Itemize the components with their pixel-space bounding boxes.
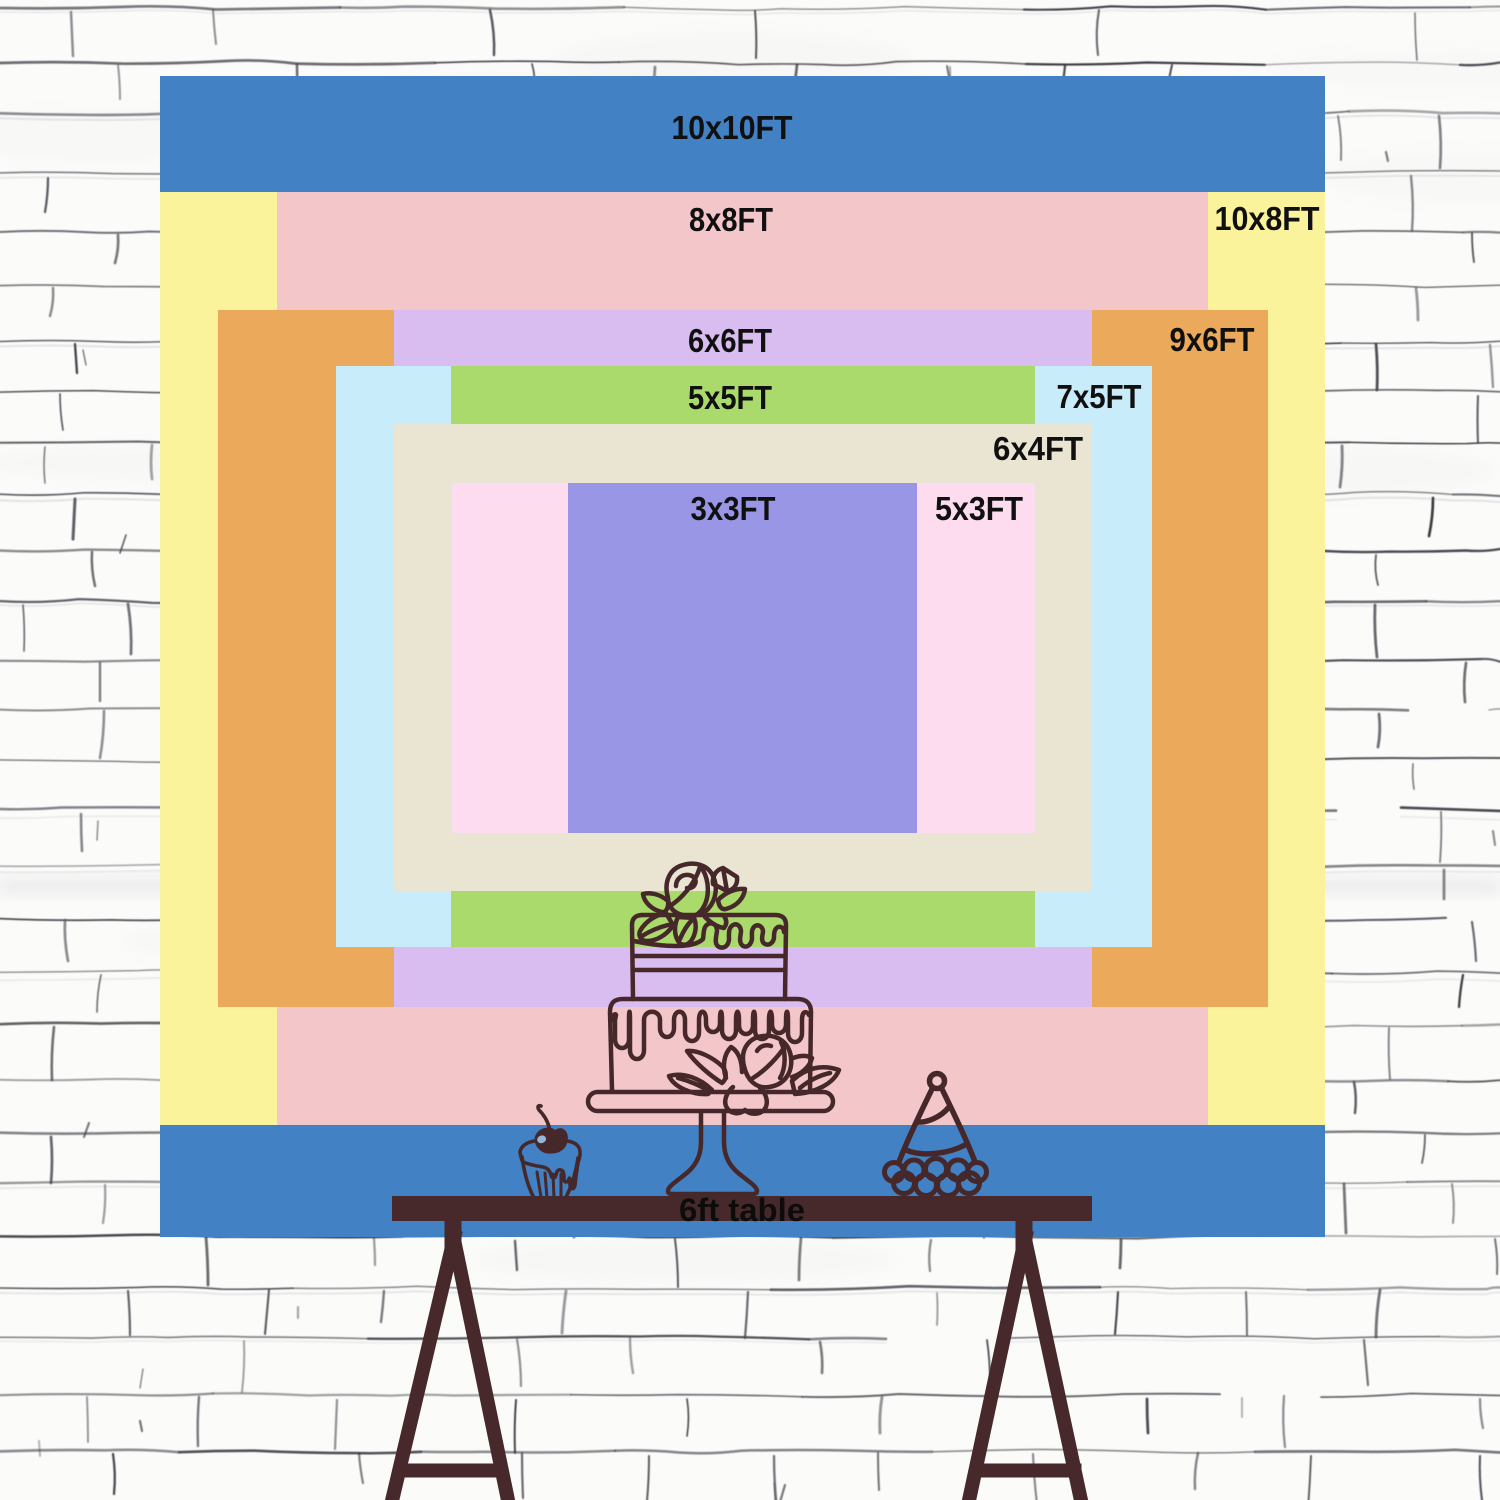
svg-text:3x3FT: 3x3FT — [691, 490, 776, 527]
svg-text:10x8FT: 10x8FT — [1215, 200, 1320, 237]
svg-text:6ft table: 6ft table — [679, 1192, 805, 1228]
svg-text:5x5FT: 5x5FT — [688, 379, 772, 416]
svg-text:8x8FT: 8x8FT — [689, 201, 773, 238]
svg-text:10x10FT: 10x10FT — [672, 109, 793, 146]
svg-text:6x6FT: 6x6FT — [688, 322, 772, 359]
svg-text:7x5FT: 7x5FT — [1057, 378, 1142, 415]
svg-text:9x6FT: 9x6FT — [1170, 321, 1255, 358]
svg-text:5x3FT: 5x3FT — [935, 490, 1023, 527]
svg-text:6x4FT: 6x4FT — [993, 430, 1083, 467]
